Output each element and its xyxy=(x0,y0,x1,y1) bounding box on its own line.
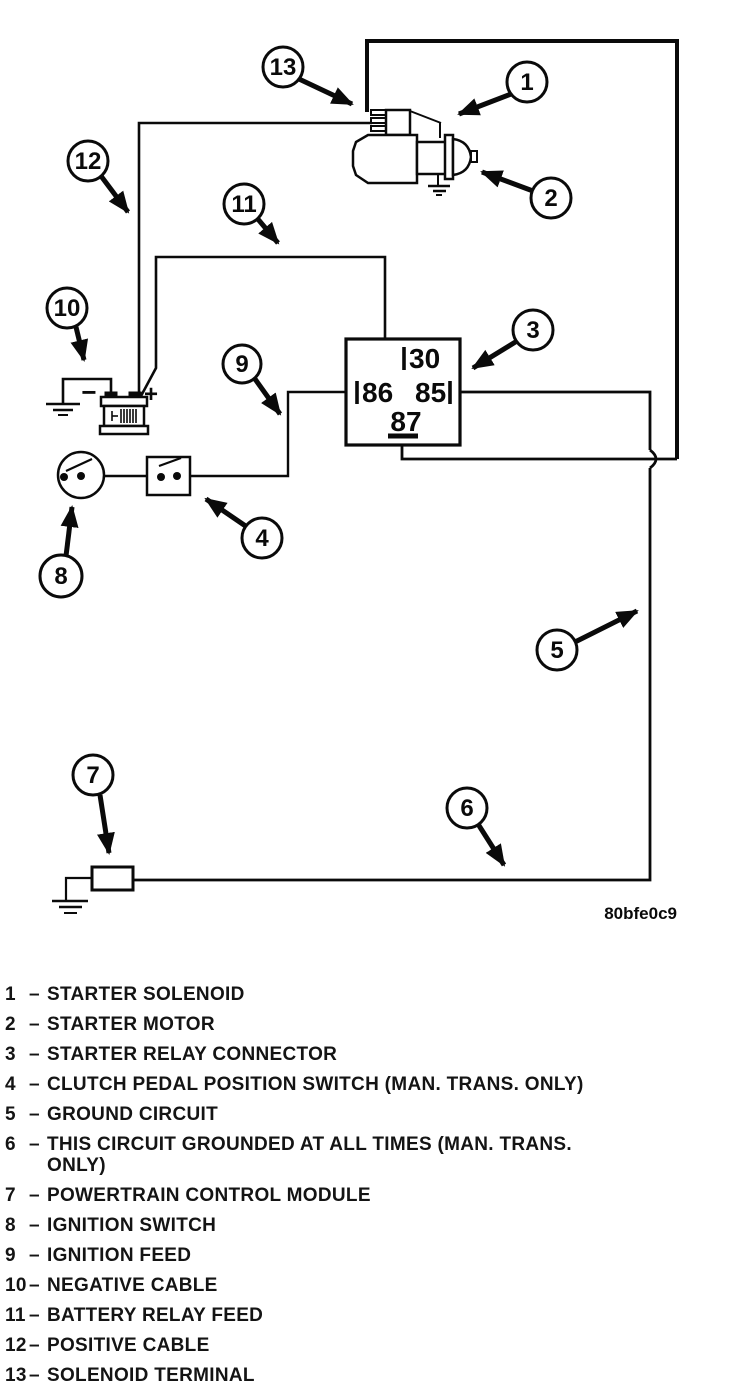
svg-text:11: 11 xyxy=(231,191,256,218)
battery-negative-sign: − xyxy=(81,377,96,407)
callout-3-badge: 3 xyxy=(513,310,553,350)
legend-item-dash: – xyxy=(29,1215,47,1236)
callout-12-arrow xyxy=(101,176,128,212)
starter-circuit-schematic: − + xyxy=(0,0,736,960)
legend-item-label: POSITIVE CABLE xyxy=(47,1335,733,1356)
legend-item-8: 8 – IGNITION SWITCH xyxy=(5,1215,733,1236)
relay-pin-86: 86 xyxy=(362,377,393,408)
legend-item-label: CLUTCH PEDAL POSITION SWITCH (MAN. TRANS… xyxy=(47,1074,733,1095)
legend-item-dash: – xyxy=(29,1134,47,1155)
battery-positive-sign: + xyxy=(144,381,158,408)
legend-item-2: 2 – STARTER MOTOR xyxy=(5,1014,733,1035)
legend-item-dash: – xyxy=(29,1074,47,1095)
clutch-switch-symbol xyxy=(147,457,190,495)
svg-text:12: 12 xyxy=(75,148,102,175)
legend-item-9: 9 – IGNITION FEED xyxy=(5,1245,733,1266)
svg-text:5: 5 xyxy=(550,637,563,664)
legend-item-label-line1: THIS CIRCUIT GROUNDED AT ALL TIMES (MAN.… xyxy=(47,1134,733,1155)
legend-item-dash: – xyxy=(29,1044,47,1065)
callout-4-badge: 4 xyxy=(242,518,282,558)
legend-item-dash: – xyxy=(29,1275,47,1296)
callout-6-badge: 6 xyxy=(447,788,487,828)
legend-item-11: 11 – BATTERY RELAY FEED xyxy=(5,1305,733,1326)
pcm-box xyxy=(52,867,133,913)
legend-item-label: BATTERY RELAY FEED xyxy=(47,1305,733,1326)
legend-item-label: SOLENOID TERMINAL xyxy=(47,1365,733,1386)
legend-item-10: 10 – NEGATIVE CABLE xyxy=(5,1275,733,1296)
legend-item-number: 5 xyxy=(5,1104,29,1125)
svg-text:3: 3 xyxy=(526,317,539,344)
legend-item-label: NEGATIVE CABLE xyxy=(47,1275,733,1296)
legend-item-number: 4 xyxy=(5,1074,29,1095)
legend-item-dash: – xyxy=(29,984,47,1005)
callout-1-arrow xyxy=(459,94,511,114)
legend-item-label: GROUND CIRCUIT xyxy=(47,1104,733,1125)
svg-text:10: 10 xyxy=(54,295,81,322)
callout-8-badge: 8 xyxy=(40,555,82,597)
legend-item-7: 7 – POWERTRAIN CONTROL MODULE xyxy=(5,1185,733,1206)
legend-item-6: 6 – THIS CIRCUIT GROUNDED AT ALL TIMES (… xyxy=(5,1134,733,1176)
battery-icon xyxy=(100,392,148,434)
legend-item-label: STARTER SOLENOID xyxy=(47,984,733,1005)
legend-item-label: IGNITION SWITCH xyxy=(47,1215,733,1236)
legend-item-label: STARTER MOTOR xyxy=(47,1014,733,1035)
callout-10-badge: 10 xyxy=(47,288,87,328)
callout-4-arrow xyxy=(206,499,247,527)
legend-item-dash: – xyxy=(29,1365,47,1386)
legend-item-number: 10 xyxy=(5,1275,29,1296)
legend-item-number: 7 xyxy=(5,1185,29,1206)
starter-motor-drawing xyxy=(353,110,477,195)
legend-item-number: 9 xyxy=(5,1245,29,1266)
svg-text:2: 2 xyxy=(544,185,557,212)
wire-ground-circuit xyxy=(133,392,656,880)
legend-item-3: 3 – STARTER RELAY CONNECTOR xyxy=(5,1044,733,1065)
callout-11-badge: 11 xyxy=(224,184,264,224)
figure-code: 80bfe0c9 xyxy=(604,904,677,923)
legend-item-number: 3 xyxy=(5,1044,29,1065)
legend-item-number: 11 xyxy=(5,1305,29,1326)
svg-text:1: 1 xyxy=(520,69,533,96)
callout-9-badge: 9 xyxy=(223,345,261,383)
svg-text:9: 9 xyxy=(235,351,248,378)
callout-9-arrow xyxy=(255,379,280,414)
legend-item-dash: – xyxy=(29,1185,47,1206)
callout-2-arrow xyxy=(482,172,533,191)
callout-7-badge: 7 xyxy=(73,755,113,795)
legend-item-5: 5 – GROUND CIRCUIT xyxy=(5,1104,733,1125)
svg-text:7: 7 xyxy=(86,762,99,789)
legend-item-label-line2: ONLY) xyxy=(47,1155,733,1176)
callout-5-arrow xyxy=(575,611,637,642)
legend-item-12: 12 – POSITIVE CABLE xyxy=(5,1335,733,1356)
svg-text:8: 8 xyxy=(54,563,67,590)
callout-3-arrow xyxy=(473,341,517,368)
ground-icon xyxy=(46,404,80,415)
relay-pin-87: 87 xyxy=(390,406,421,437)
relay-connector: 30 86 85 87 xyxy=(346,339,460,445)
legend-item-dash: – xyxy=(29,1335,47,1356)
svg-text:4: 4 xyxy=(255,525,269,552)
legend-item-label: STARTER RELAY CONNECTOR xyxy=(47,1044,733,1065)
legend-item-number: 6 xyxy=(5,1134,29,1155)
wiring-diagram-page: − + xyxy=(0,0,736,1400)
legend-item-13: 13 – SOLENOID TERMINAL xyxy=(5,1365,733,1386)
legend-item-number: 2 xyxy=(5,1014,29,1035)
svg-text:6: 6 xyxy=(460,795,473,822)
ignition-switch-symbol xyxy=(58,452,104,498)
legend-item-number: 8 xyxy=(5,1215,29,1236)
ground-icon xyxy=(52,901,88,913)
legend-item-dash: – xyxy=(29,1305,47,1326)
legend-item-1: 1 – STARTER SOLENOID xyxy=(5,984,733,1005)
svg-text:13: 13 xyxy=(270,54,297,81)
callout-11-arrow xyxy=(257,218,278,243)
callout-10-arrow xyxy=(76,327,84,360)
callout-6-arrow xyxy=(478,824,504,865)
legend-item-dash: – xyxy=(29,1245,47,1266)
callout-8-arrow xyxy=(66,507,72,556)
legend-item-number: 12 xyxy=(5,1335,29,1356)
solenoid-terminal-icon xyxy=(371,110,386,131)
callout-2-badge: 2 xyxy=(531,178,571,218)
callout-13-badge: 13 xyxy=(263,47,303,87)
legend-item-number: 1 xyxy=(5,984,29,1005)
callout-5-badge: 5 xyxy=(537,630,577,670)
legend-item-dash: – xyxy=(29,1014,47,1035)
legend-item-label: POWERTRAIN CONTROL MODULE xyxy=(47,1185,733,1206)
legend-item-label: IGNITION FEED xyxy=(47,1245,733,1266)
callout-1-badge: 1 xyxy=(507,62,547,102)
relay-pin-30: 30 xyxy=(409,343,440,374)
relay-pin-85: 85 xyxy=(415,377,446,408)
legend-list: 1 – STARTER SOLENOID 2 – STARTER MOTOR 3… xyxy=(5,984,733,1395)
callout-7-arrow xyxy=(100,795,109,853)
callout-13-arrow xyxy=(299,79,352,104)
legend-item-dash: – xyxy=(29,1104,47,1125)
legend-item-label: THIS CIRCUIT GROUNDED AT ALL TIMES (MAN.… xyxy=(47,1134,733,1176)
legend-item-4: 4 – CLUTCH PEDAL POSITION SWITCH (MAN. T… xyxy=(5,1074,733,1095)
legend-item-number: 13 xyxy=(5,1365,29,1386)
callout-12-badge: 12 xyxy=(68,141,108,181)
